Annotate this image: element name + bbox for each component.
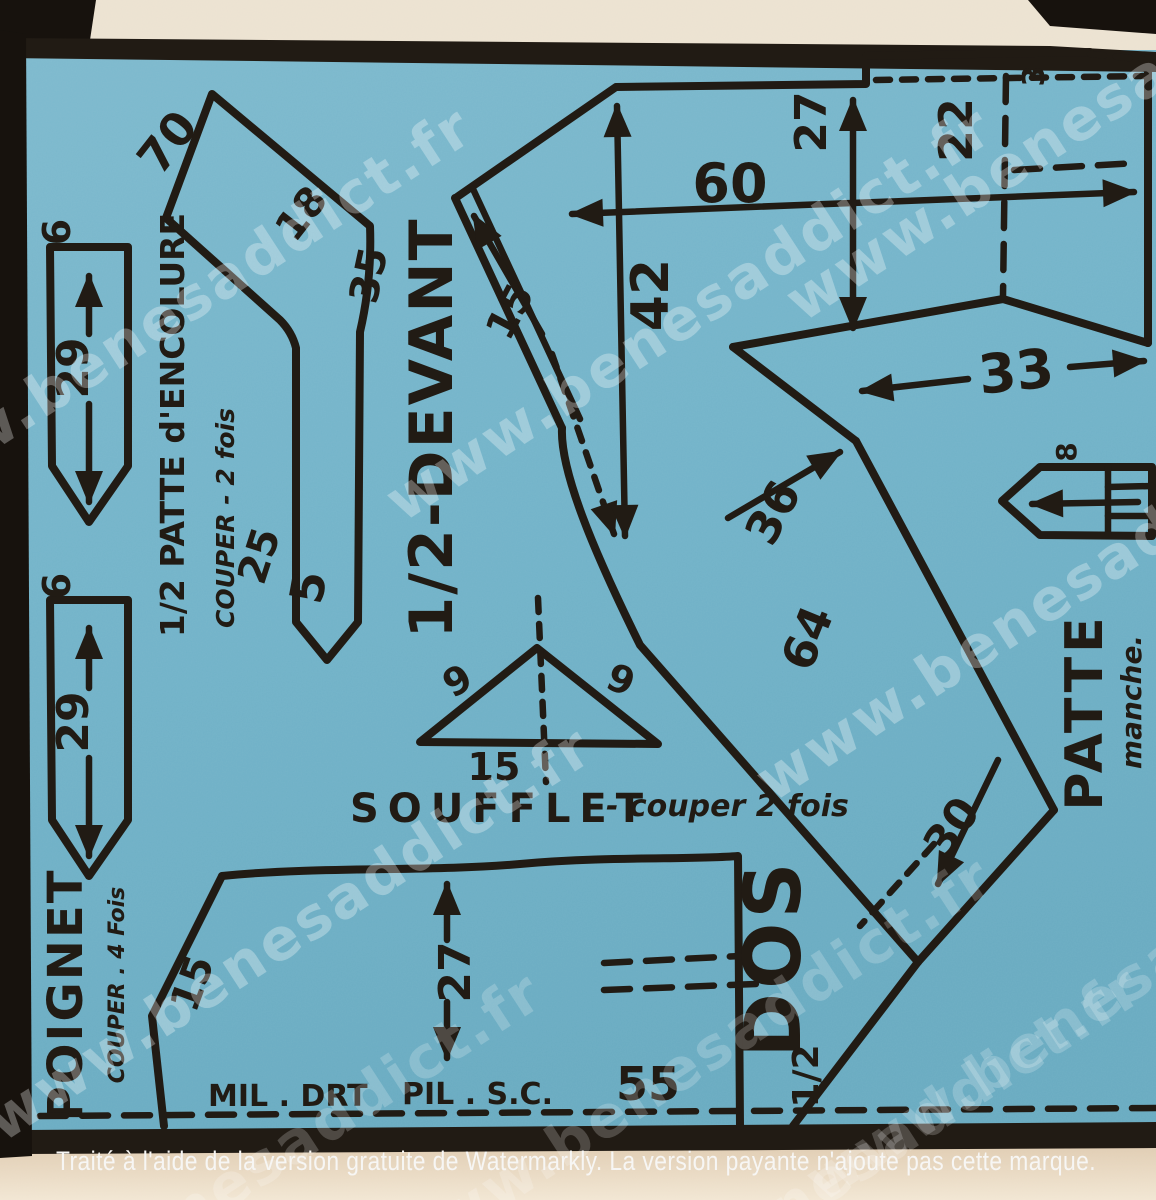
- cuff-strip-2-width: 6: [35, 573, 79, 599]
- pattern-sheet-canvas: 70 18 35 25 5 1/2 PATTE d'ENCOLURE COUPE…: [0, 0, 1156, 1200]
- cuff-strip-2-length: 29: [48, 691, 99, 752]
- pattern-sheet-photo: 70 18 35 25 5 1/2 PATTE d'ENCOLURE COUPE…: [0, 0, 1156, 1200]
- back-half-label: 1/2: [786, 1044, 827, 1107]
- sleeve-placket-title: PATTE: [1055, 613, 1115, 810]
- sleeve-placket-measure-8: 8: [1050, 442, 1083, 461]
- neckband-cut-note: COUPER - 2 fois: [211, 408, 240, 628]
- front-measure-27: 27: [786, 91, 837, 152]
- cuff-strip-1-width: 6: [35, 219, 79, 245]
- front-measure-60: 60: [692, 152, 767, 215]
- gusset-cut-note: - couper 2 fois: [606, 789, 849, 824]
- front-measure-3: 3: [1017, 66, 1052, 87]
- sleeve-placket-arrow: [1032, 502, 1138, 504]
- watermarkly-notice: Traité à l'aide de la version gratuite d…: [56, 1146, 1096, 1176]
- sleeve-placket-subtitle: manche.: [1115, 635, 1148, 769]
- front-measure-33: 33: [975, 336, 1056, 407]
